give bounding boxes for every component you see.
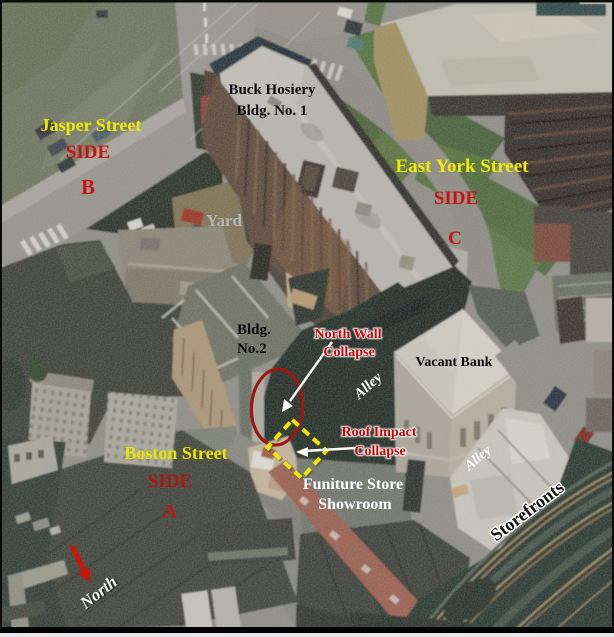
svg-text:A: A — [163, 501, 178, 523]
svg-text:Roof Impact: Roof Impact — [341, 425, 416, 440]
svg-text:Bldg.: Bldg. — [237, 322, 271, 338]
svg-text:Showroom: Showroom — [318, 496, 392, 513]
svg-text:Collapse: Collapse — [354, 444, 405, 459]
svg-text:SIDE: SIDE — [148, 471, 192, 492]
svg-text:B: B — [81, 175, 95, 199]
svg-text:Yard: Yard — [206, 211, 242, 230]
svg-text:Jasper Street: Jasper Street — [41, 115, 142, 135]
svg-text:North Wall: North Wall — [314, 327, 381, 342]
svg-text:Boston Street: Boston Street — [124, 443, 227, 463]
svg-text:SIDE: SIDE — [434, 188, 478, 209]
svg-text:SIDE: SIDE — [66, 142, 110, 163]
svg-text:Funiture Store: Funiture Store — [303, 476, 403, 493]
svg-text:Collapse: Collapse — [323, 345, 374, 360]
svg-text:Vacant Bank: Vacant Bank — [416, 355, 493, 370]
svg-text:C: C — [448, 228, 462, 249]
svg-text:Bldg. No. 1: Bldg. No. 1 — [237, 103, 308, 119]
svg-text:Buck Hosiery: Buck Hosiery — [228, 82, 316, 98]
svg-text:No.2: No.2 — [237, 341, 267, 357]
svg-text:East York Street: East York Street — [396, 156, 530, 177]
